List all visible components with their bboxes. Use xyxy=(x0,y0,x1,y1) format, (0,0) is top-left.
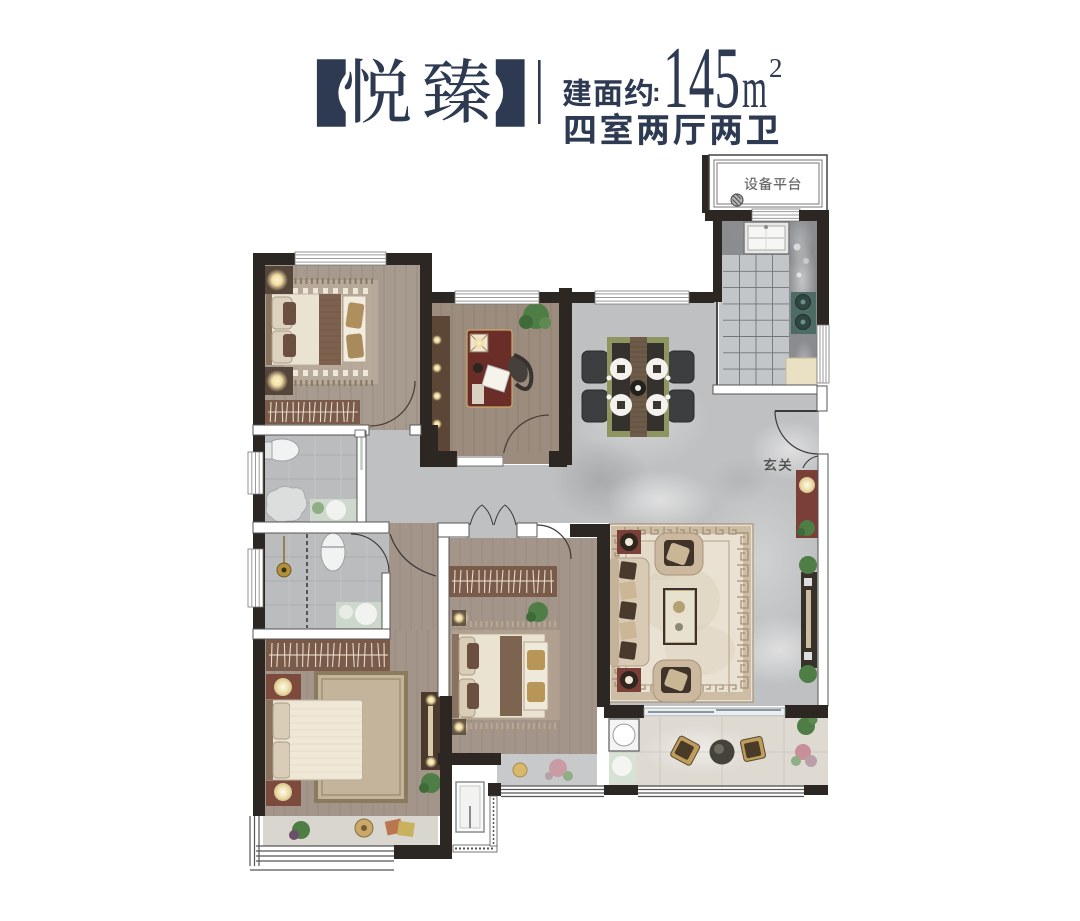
svg-text:m: m xyxy=(742,57,767,120)
svg-text:2: 2 xyxy=(769,53,783,83)
svg-text::: : xyxy=(652,77,661,107)
svg-text:145: 145 xyxy=(663,30,740,127)
